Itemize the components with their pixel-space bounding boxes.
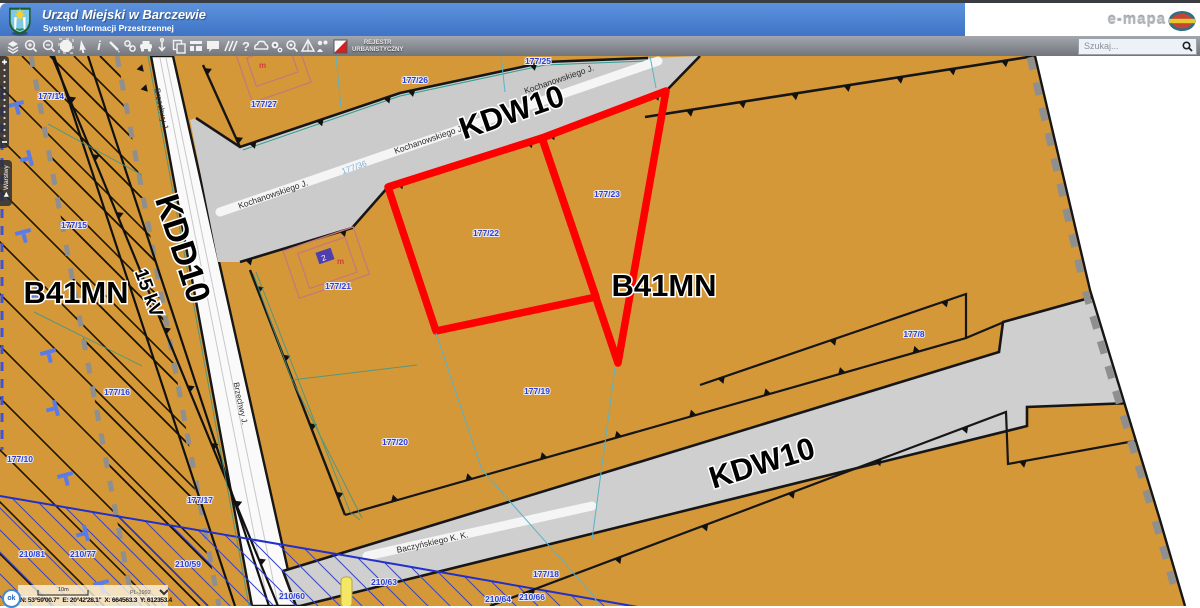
svg-text:177/16: 177/16 [104, 387, 130, 397]
svg-text:177/22: 177/22 [473, 228, 499, 238]
svg-text:210/77: 210/77 [70, 549, 96, 559]
svg-text:10m: 10m [58, 587, 69, 593]
svg-text:177/15: 177/15 [61, 220, 87, 230]
svg-text:177/26: 177/26 [402, 75, 428, 85]
svg-text:210/59: 210/59 [175, 559, 201, 569]
svg-text:B41MN: B41MN [611, 268, 716, 303]
svg-text:177/21: 177/21 [325, 281, 351, 291]
svg-text:177/17: 177/17 [187, 495, 213, 505]
svg-text:177/8: 177/8 [903, 329, 925, 339]
svg-text:m: m [337, 257, 344, 266]
svg-text:m: m [259, 61, 266, 70]
svg-text:?: ? [242, 39, 250, 54]
svg-text:177/10: 177/10 [7, 454, 33, 464]
svg-text:i: i [97, 38, 101, 53]
svg-text:177/20: 177/20 [382, 437, 408, 447]
svg-text:210/81: 210/81 [19, 549, 45, 559]
svg-text:177/18: 177/18 [533, 569, 559, 579]
svg-text:210/64: 210/64 [485, 594, 511, 604]
svg-text:210/63: 210/63 [371, 577, 397, 587]
svg-text:177/14: 177/14 [38, 91, 64, 101]
svg-text:177/19: 177/19 [524, 386, 550, 396]
svg-text:177/25: 177/25 [525, 56, 551, 66]
svg-text:B41MN: B41MN [23, 275, 128, 310]
svg-text:210/60: 210/60 [279, 591, 305, 601]
svg-text:210/66: 210/66 [519, 592, 545, 602]
svg-text:177/27: 177/27 [251, 99, 277, 109]
svg-text:177/23: 177/23 [594, 189, 620, 199]
